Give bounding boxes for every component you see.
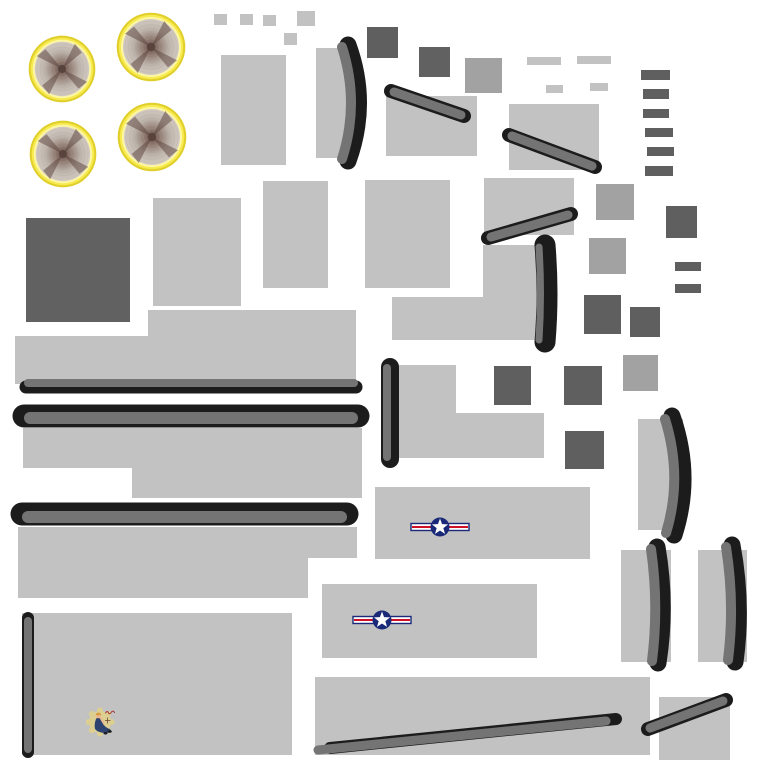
dark-slat-patch <box>643 109 669 118</box>
wing-panel-patch <box>18 527 357 558</box>
dark-slat-patch <box>675 262 701 271</box>
dark-panel-patch <box>565 431 604 469</box>
dark-panel-patch <box>584 295 621 334</box>
panel-patch <box>315 677 650 755</box>
dark-panel-patch <box>630 307 660 337</box>
cowl-ring-icon <box>118 103 187 172</box>
wing-panel-patch <box>18 558 308 598</box>
cowl-ring-icon <box>30 121 97 188</box>
large-dark-panel-patch <box>26 218 130 322</box>
panel-patch <box>386 96 477 156</box>
nose-panel-patch <box>22 613 292 755</box>
dark-panel-patch <box>666 206 697 238</box>
dark-panel-patch <box>494 366 531 405</box>
propeller-blade-strip <box>545 245 547 342</box>
panel-patch <box>390 365 456 413</box>
mid-panel-patch <box>623 355 658 391</box>
engine-cowling-texture <box>28 35 96 103</box>
mid-panel-patch <box>596 184 634 220</box>
blade-backing-patch <box>638 419 683 530</box>
engine-cowling-texture <box>116 12 186 82</box>
engine-cowling-texture <box>29 120 97 188</box>
dark-slat-patch <box>647 147 674 156</box>
propeller-blade-highlight <box>539 247 541 340</box>
thin-panel-strip <box>527 57 561 65</box>
wing-panel-patch <box>132 468 362 498</box>
fuselage-panel-patch <box>375 487 590 559</box>
dark-panel-patch <box>419 47 450 77</box>
small-panel-patch <box>214 14 227 25</box>
wing-panel-patch <box>15 336 356 384</box>
panel-patch <box>392 297 536 340</box>
dark-slat-patch <box>645 128 673 137</box>
propeller-blur-icon <box>116 12 186 82</box>
thin-panel-strip <box>546 85 563 93</box>
mid-panel-patch <box>589 238 626 274</box>
small-panel-patch <box>284 33 297 45</box>
blade-backing-patch <box>621 550 671 662</box>
panel-patch <box>221 55 286 165</box>
panel-patch <box>365 180 450 288</box>
small-panel-patch <box>297 11 315 26</box>
panel-patch <box>263 181 328 288</box>
engine-cowling-texture <box>117 102 187 172</box>
mid-panel-patch <box>465 58 502 93</box>
small-panel-patch <box>263 15 276 26</box>
dark-slat-patch <box>645 166 673 176</box>
dark-slat-patch <box>643 89 669 99</box>
panel-patch <box>659 697 730 760</box>
propeller-blur-icon <box>117 102 187 172</box>
small-panel-patch <box>240 14 253 25</box>
texture-atlas-canvas <box>0 0 768 768</box>
panel-patch <box>509 104 599 170</box>
cowl-ring-icon <box>117 13 186 82</box>
panel-patch <box>390 413 544 458</box>
panel-patch <box>153 198 241 306</box>
cowl-ring-icon <box>29 36 96 103</box>
blade-backing-patch <box>698 550 747 662</box>
wing-panel-patch <box>23 428 362 468</box>
dark-slat-patch <box>641 70 670 80</box>
panel-patch <box>484 178 574 235</box>
thin-panel-strip <box>577 56 611 64</box>
propeller-blur-icon <box>29 120 97 188</box>
wing-panel-patch <box>148 310 356 336</box>
dark-panel-patch <box>564 366 602 405</box>
dark-panel-patch <box>367 27 398 58</box>
dark-slat-patch <box>675 284 701 293</box>
blade-backing-patch <box>316 48 356 158</box>
propeller-blur-icon <box>28 35 96 103</box>
fuselage-panel-patch <box>322 584 537 658</box>
thin-panel-strip <box>590 83 608 91</box>
